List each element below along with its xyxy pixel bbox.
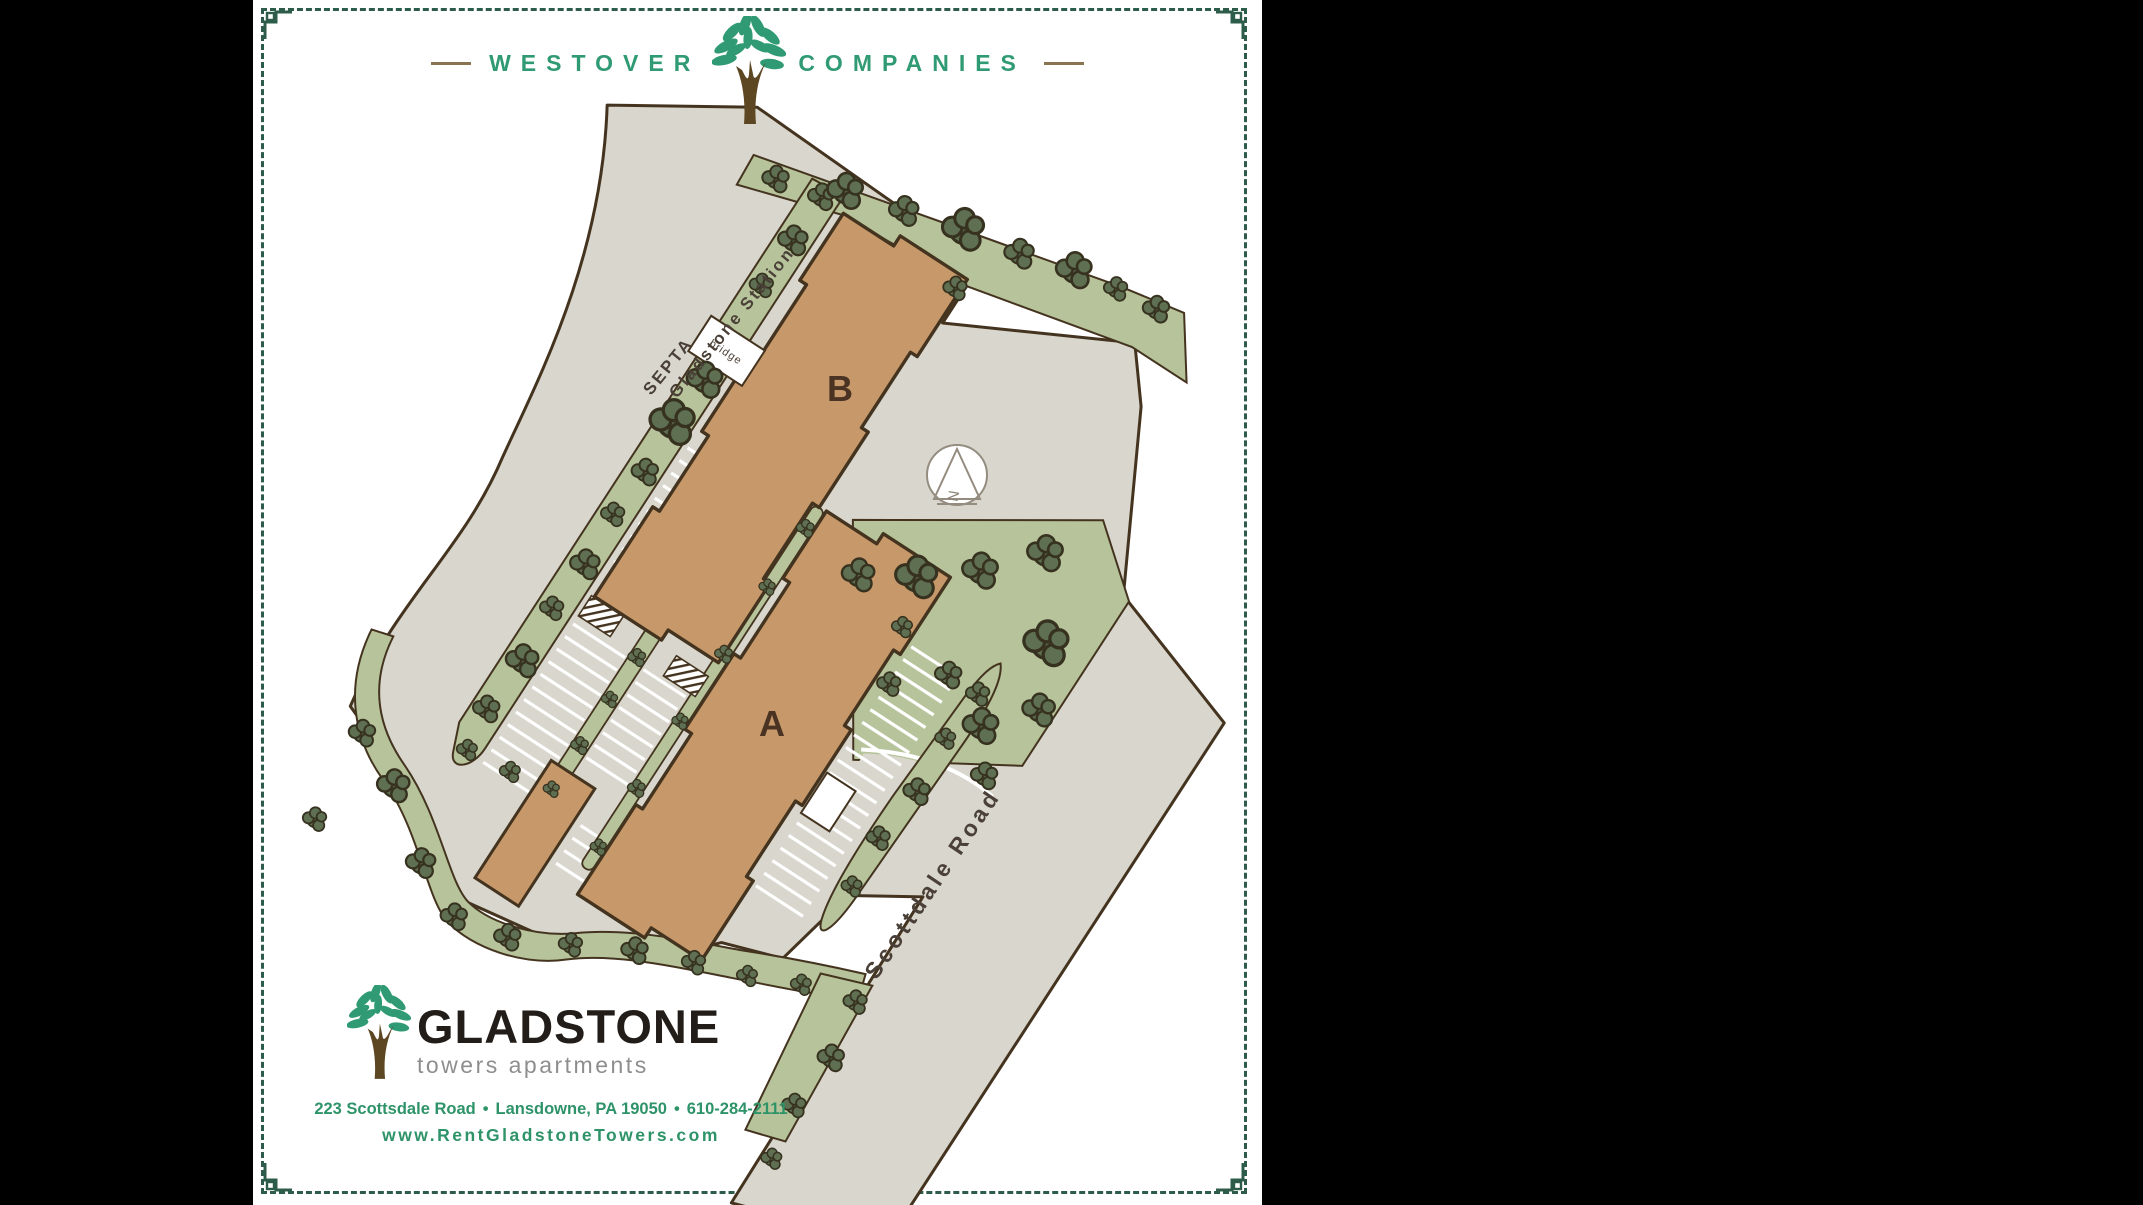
- phone: 610-284-2111: [687, 1100, 788, 1118]
- footer: GLADSTONE towers apartments 223 Scottsda…: [311, 985, 791, 1146]
- address-line: 223 Scottsdale Road•Lansdowne, PA 19050•…: [311, 1100, 791, 1119]
- property-tagline: towers apartments: [417, 1052, 720, 1079]
- north-arrow-icon: N: [927, 445, 987, 505]
- brand-word-right: COMPANIES: [798, 50, 1026, 77]
- gladstone-tree-icon: [347, 985, 411, 1086]
- building-a-label: A: [759, 703, 785, 744]
- city: Lansdowne, PA 19050: [495, 1100, 666, 1118]
- brand-dash-right: [1044, 62, 1084, 65]
- building-b-label: B: [827, 368, 853, 409]
- separator-dot: •: [476, 1100, 496, 1118]
- brand-dash-left: [431, 62, 471, 65]
- separator-dot: •: [667, 1100, 687, 1118]
- address: 223 Scottsdale Road: [314, 1100, 475, 1118]
- screenshot-stage: bridge SEPTA Gladstone Station Scottdale…: [0, 0, 2143, 1205]
- property-name: GLADSTONE: [417, 1003, 720, 1050]
- brand-word-left: WESTOVER: [489, 50, 700, 77]
- tree-icon: [300, 803, 331, 833]
- website: www.RentGladstoneTowers.com: [311, 1125, 791, 1146]
- header-brand: WESTOVER: [253, 30, 1262, 97]
- flyer-page: bridge SEPTA Gladstone Station Scottdale…: [253, 0, 1262, 1205]
- westover-tree-icon: [712, 16, 786, 131]
